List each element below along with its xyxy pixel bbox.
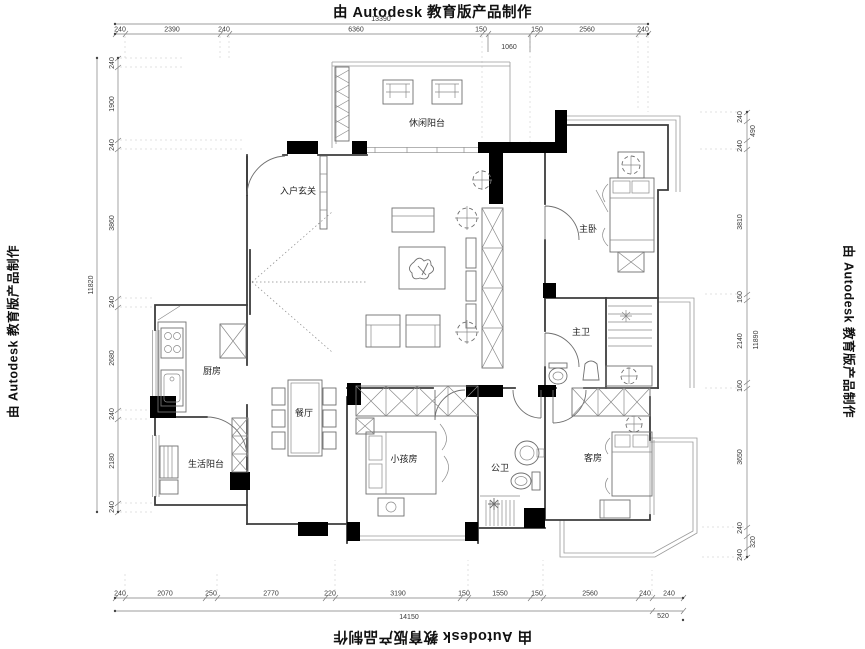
dim-bottom-seg-10: 240 [639,591,651,598]
dim-right-seg-9: 320 [750,536,757,548]
dim-left-seg-1: 1900 [109,96,116,112]
dim-right-seg-5: 2140 [737,333,744,349]
dim-top-total: 13390 [371,16,391,23]
dim-top-seg-1: 2390 [164,27,180,34]
dim-right-seg-2: 240 [737,140,744,152]
dim-right-seg-7: 3650 [737,449,744,465]
dim-bottom-seg-5: 3190 [390,591,406,598]
dim-right-seg-4: 160 [737,291,744,303]
dining-furniture [272,380,336,456]
dim-top-seg-0: 240 [114,27,126,34]
dim-bottom-seg-8: 150 [531,591,543,598]
dim-left-seg-2: 240 [109,139,116,151]
dim-bottom-seg-4: 220 [324,591,336,598]
master-bath-fixtures [549,306,652,386]
dim-right-seg-8: 240 [737,522,744,534]
dim-bottom-seg-11: 240 [663,591,675,598]
room-label-leisure-balcony: 休闲阳台 [409,117,445,128]
dim-left-seg-7: 2180 [109,453,116,469]
dim-left-seg-4: 240 [109,296,116,308]
leisure-balcony-furniture [335,67,462,141]
dim-bottom-seg-7: 1550 [492,591,508,598]
dim-bottom-seg-0: 240 [114,591,126,598]
dim-top-seg-7: 2560 [579,27,595,34]
dim-left-total: 11820 [88,275,95,294]
dim-right-seg-10: 240 [737,549,744,561]
room-label-master-bath: 主卫 [572,326,590,337]
dim-labels-bottom: 240 2070 250 2770 220 3190 150 1550 150 … [114,591,675,622]
kids-room-furniture [356,386,478,516]
dim-right-seg-1: 490 [750,125,757,137]
dim-left-seg-3: 3860 [109,215,116,231]
dim-labels-right: 11890 240 490 240 3810 160 2140 160 3650… [737,111,760,561]
dim-left-seg-8: 240 [109,501,116,513]
dim-top-seg-4: 150 [475,27,487,34]
dim-top-seg-5: 1060 [501,44,517,51]
dim-bottom-seg-6: 150 [458,591,470,598]
floorplan-page: 由 Autodesk 教育版产品制作 由 Autodesk 教育版产品制作 由 … [0,0,865,649]
dim-bottom-seg-2: 250 [205,591,217,598]
dim-top-seg-3: 6360 [348,27,364,34]
dim-labels-left: 11820 240 1900 240 3860 240 2680 240 218… [88,57,116,513]
dim-labels-top: 13390 240 2390 240 6360 150 1060 150 256… [114,16,649,51]
room-label-master-bedroom: 主卧 [579,223,597,234]
bay-ledges [153,116,698,557]
dim-right-seg-6: 160 [737,380,744,392]
foyer-cabinet [320,156,327,229]
dim-right-seg-3: 3810 [737,214,744,230]
master-bedroom-furniture [596,152,654,272]
dim-bottom-total: 14150 [399,614,419,621]
dim-left-seg-6: 240 [109,408,116,420]
doors [207,156,586,457]
room-label-kitchen: 厨房 [203,365,221,376]
dim-bottom-seg-1: 2070 [157,591,173,598]
room-label-guest-room: 客房 [584,452,602,463]
dim-bottom-seg-9: 2560 [582,591,598,598]
dim-right-seg-0: 240 [737,111,744,123]
dim-top-seg-6: 150 [531,27,543,34]
dim-bottom-extra: 520 [657,613,669,620]
balcony-walls [332,62,510,148]
dim-top-seg-8: 240 [637,27,649,34]
floorplan-drawing: 13390 240 2390 240 6360 150 1060 150 256… [0,0,865,649]
room-label-dining-room: 餐厅 [295,407,313,418]
room-label-kids-room: 小孩房 [390,453,417,464]
wall-blocks [150,110,567,541]
dim-right-total: 11890 [753,330,760,349]
dim-left-seg-0: 240 [109,57,116,69]
dim-left-seg-5: 2680 [109,350,116,366]
dim-bottom-seg-3: 2770 [263,591,279,598]
room-label-entry-foyer: 入户玄关 [280,185,316,196]
room-label-guest-bath: 公卫 [491,463,509,473]
room-label-utility-balcony: 生活阳台 [188,458,224,469]
dim-top-seg-2: 240 [218,27,230,34]
living-room-furniture [250,170,503,368]
